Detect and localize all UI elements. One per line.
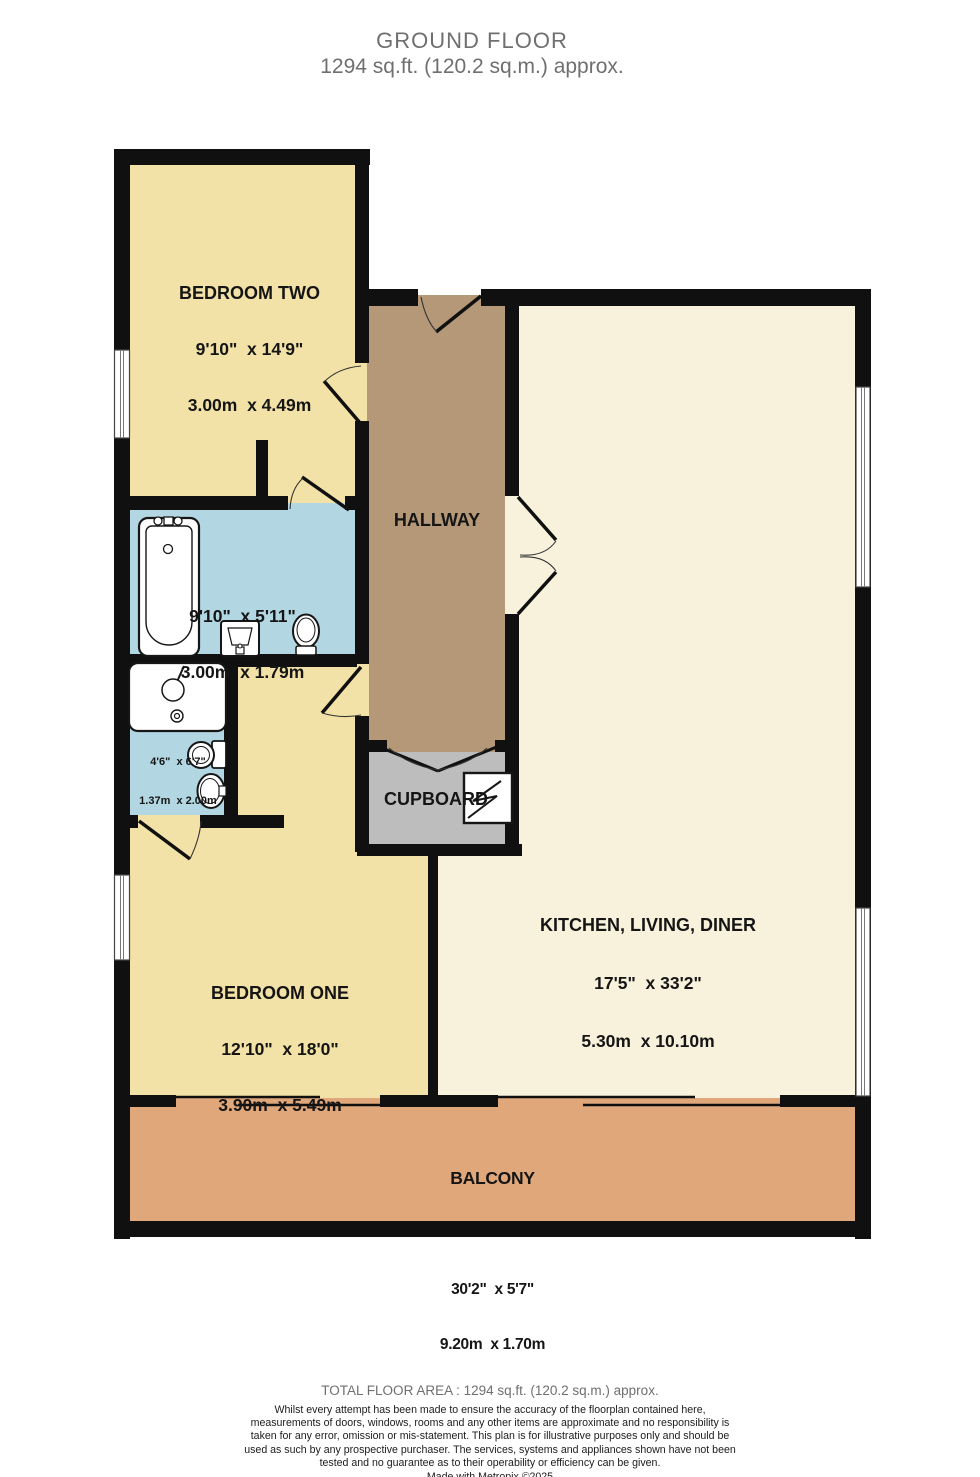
plan-footer: TOTAL FLOOR AREA : 1294 sq.ft. (120.2 sq…	[240, 1382, 740, 1477]
kitchen-label: KITCHEN, LIVING, DINER 17'5" x 33'2" 5.3…	[518, 878, 778, 1088]
kitchen-double-doors	[518, 497, 556, 614]
metropix-credit: Made with Metropix ©2025	[240, 1471, 740, 1477]
bedroom-two-label: BEDROOM TWO 9'10" x 14'9" 3.00m x 4.49m	[130, 247, 369, 451]
cupboard-doors	[377, 746, 499, 771]
wc-label: 4'6" x 6'7" 1.37m x 2.00m	[126, 730, 230, 834]
bedroom-one-label: BEDROOM ONE 12'10" x 18'0" 3.90m x 5.49m	[128, 947, 432, 1151]
bathroom-door	[290, 477, 349, 510]
cupboard-label: CUPBOARD	[360, 789, 512, 809]
sliding-door	[498, 1097, 780, 1105]
balcony-label: BALCONY 30'2" x 5'7" 9.20m x 1.70m	[126, 1133, 859, 1390]
hallway-label: HALLWAY	[367, 510, 507, 530]
entrance-door	[421, 296, 481, 332]
window	[856, 387, 870, 587]
floorplan: GROUND FLOOR 1294 sq.ft. (120.2 sq.m.) a…	[0, 0, 980, 1477]
disclaimer-text: Whilst every attempt has been made to en…	[240, 1404, 740, 1470]
bathroom-label: 9'10" x 5'11" 3.00m x 1.79m	[128, 570, 357, 718]
window	[115, 350, 130, 438]
entrance-opening	[418, 284, 481, 295]
total-floor-area: TOTAL FLOOR AREA : 1294 sq.ft. (120.2 sq…	[240, 1382, 740, 1400]
window	[856, 908, 870, 1096]
